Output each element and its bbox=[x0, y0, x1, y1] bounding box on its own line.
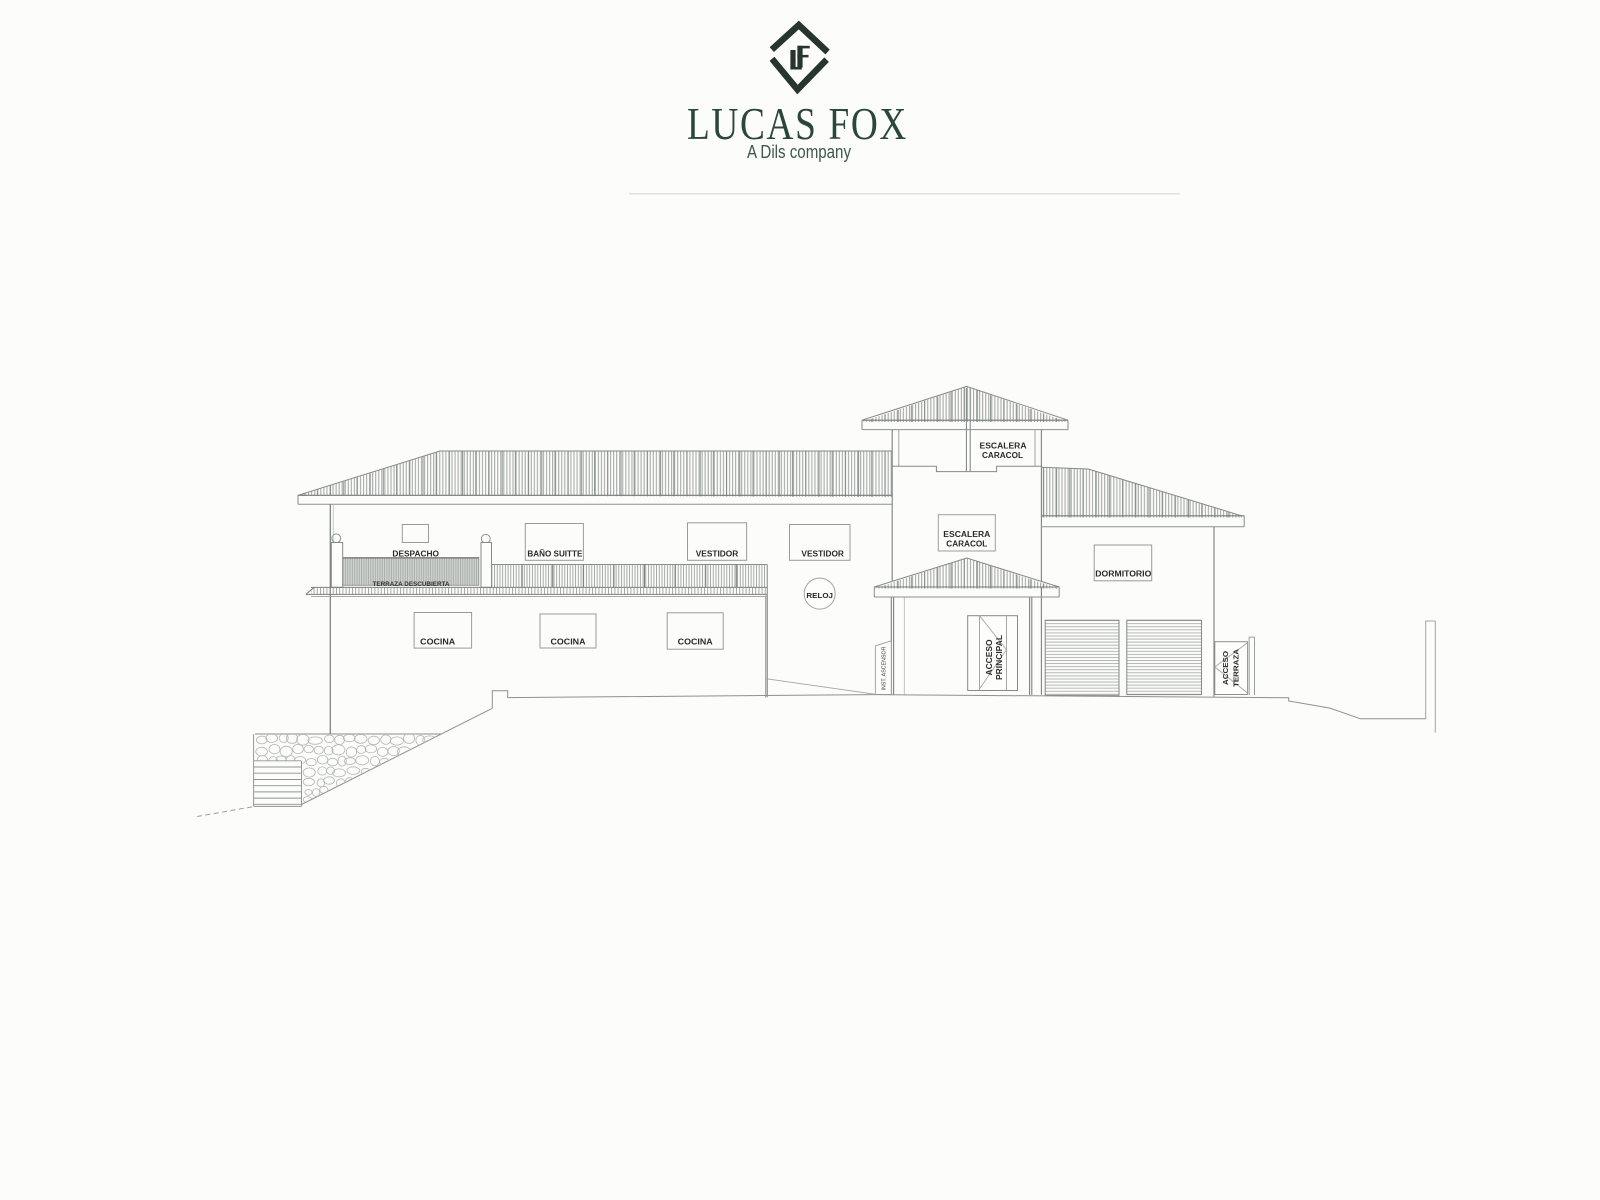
svg-text:ESCALERA: ESCALERA bbox=[980, 441, 1027, 450]
svg-text:BAÑO SUITTE: BAÑO SUITTE bbox=[527, 550, 583, 559]
svg-text:TERRAZA: TERRAZA bbox=[1232, 648, 1241, 687]
svg-text:ESCALERA: ESCALERA bbox=[943, 530, 990, 539]
svg-text:DORMITORIO: DORMITORIO bbox=[1095, 570, 1151, 579]
svg-text:CARACOL: CARACOL bbox=[946, 540, 987, 549]
svg-text:COCINA: COCINA bbox=[678, 638, 713, 647]
svg-text:RELOJ: RELOJ bbox=[806, 591, 833, 600]
svg-text:TERRAZA DESCUBIERTA: TERRAZA DESCUBIERTA bbox=[373, 582, 451, 588]
svg-text:CARACOL: CARACOL bbox=[982, 451, 1023, 460]
svg-text:ACCESO: ACCESO bbox=[985, 640, 994, 676]
svg-text:ACCESO: ACCESO bbox=[1221, 651, 1230, 685]
svg-text:COCINA: COCINA bbox=[551, 638, 586, 647]
svg-text:A Dils company: A Dils company bbox=[747, 141, 852, 162]
svg-text:COCINA: COCINA bbox=[420, 638, 455, 647]
svg-text:INST. ASCENSOR: INST. ASCENSOR bbox=[881, 646, 887, 690]
svg-text:VESTIDOR: VESTIDOR bbox=[696, 550, 739, 559]
svg-text:VESTIDOR: VESTIDOR bbox=[801, 550, 844, 559]
svg-text:PRINCIPAL: PRINCIPAL bbox=[995, 635, 1004, 680]
